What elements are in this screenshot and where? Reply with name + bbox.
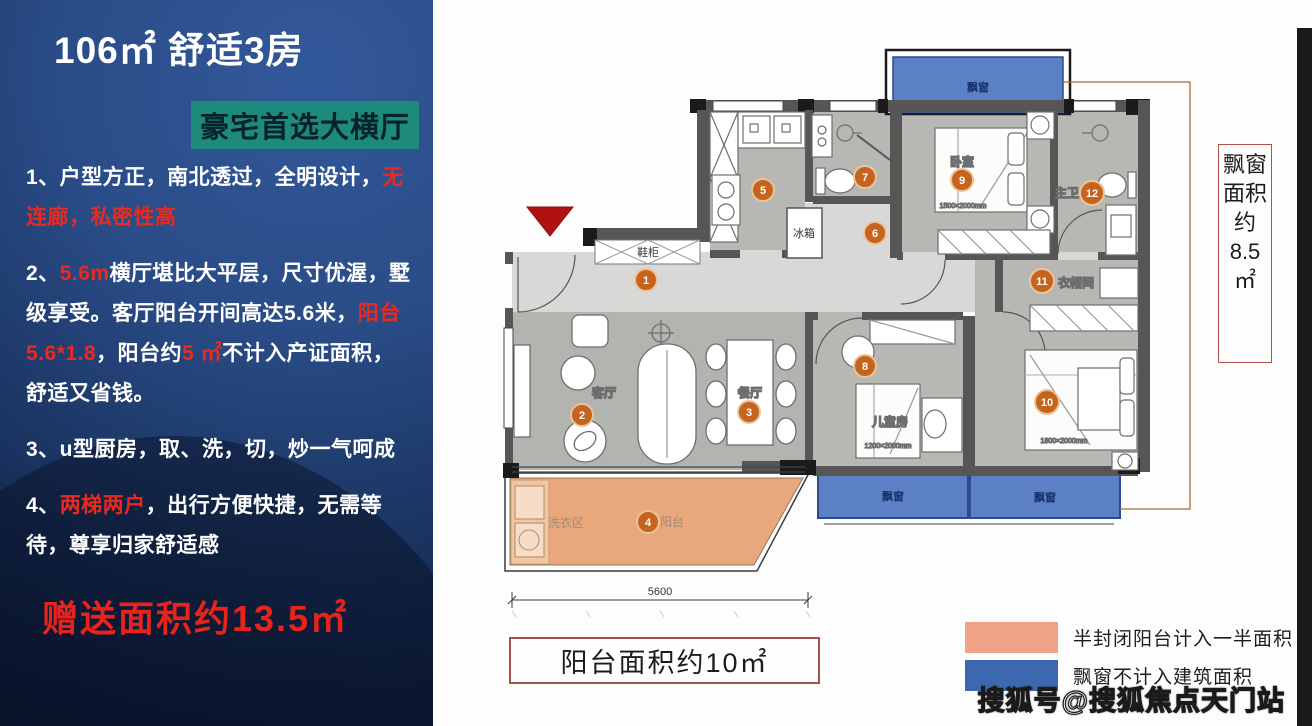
legend-item-balcony: 半封闭阳台计入一半面积 — [965, 622, 1293, 653]
right-edge-strip — [1297, 28, 1312, 726]
marker-8: 8 — [854, 355, 876, 377]
svg-text:7: 7 — [862, 172, 868, 184]
svg-text:9: 9 — [959, 175, 965, 187]
legend-label: 半封闭阳台计入一半面积 — [1073, 624, 1293, 651]
page: 106㎡ 舒适3房 豪宅首选大横厅 1、户型方正，南北透过，全明设计，无连廊，私… — [0, 0, 1312, 726]
marker-3: 3 — [738, 401, 760, 423]
dimension-line: 5600 — [508, 586, 812, 617]
svg-text:4: 4 — [645, 517, 652, 529]
svg-text:8: 8 — [862, 361, 868, 373]
marker-9: 9 — [951, 169, 973, 191]
marker-2: 2 — [571, 404, 593, 426]
bed-dimension: 1200×2000mm — [865, 443, 912, 450]
dining-label: 餐厅 — [738, 385, 762, 400]
svg-text:12: 12 — [1086, 188, 1098, 200]
marker-6: 6 — [864, 222, 886, 244]
marker-4: 4 — [637, 511, 659, 533]
svg-text:11: 11 — [1036, 276, 1048, 288]
svg-text:2: 2 — [579, 410, 585, 422]
floorplan-drawing: 洗衣区 阳台 飘窗 飘窗 飘窗 — [0, 0, 1312, 726]
bay-window-label: 飘窗 — [967, 80, 989, 94]
bay-window-label: 飘窗 — [1034, 490, 1056, 504]
laundry-label: 洗衣区 — [548, 515, 584, 530]
shoe-cabinet-label: 鞋柜 — [637, 245, 659, 259]
master-bath-label: 主卫 — [1055, 185, 1079, 200]
dimension-value: 5600 — [648, 586, 672, 598]
svg-text:10: 10 — [1041, 397, 1053, 409]
dining-room: 餐厅 — [706, 340, 796, 445]
watermark: 搜狐号@搜狐焦点天门站 — [978, 679, 1285, 718]
kids-room-label: 儿童房 — [871, 414, 908, 429]
marker-12: 12 — [1080, 181, 1104, 205]
bed-dimension: 1800×2000mm — [1041, 438, 1088, 445]
svg-text:6: 6 — [872, 228, 878, 240]
bay-windows-bottom: 飘窗 飘窗 — [818, 474, 1120, 524]
balcony-label: 阳台 — [660, 514, 684, 529]
living-label: 客厅 — [591, 385, 616, 400]
svg-text:5: 5 — [760, 185, 766, 197]
fridge-label: 冰箱 — [793, 226, 815, 240]
bay-window-area-note: 飘窗面积约 8.5 ㎡ — [1218, 144, 1272, 363]
marker-1: 1 — [635, 269, 657, 291]
svg-text:3: 3 — [746, 407, 752, 419]
entry-arrow-icon — [527, 207, 573, 236]
marker-5: 5 — [752, 179, 774, 201]
bay-window-label: 飘窗 — [882, 489, 904, 503]
marker-10: 10 — [1035, 390, 1059, 414]
closet-label: 衣帽间 — [1058, 275, 1094, 290]
marker-7: 7 — [854, 166, 876, 188]
bedroom-label: 卧室 — [950, 154, 974, 169]
legend-swatch-balcony — [965, 622, 1058, 653]
balcony-area-note: 阳台面积约10㎡ — [509, 637, 820, 684]
svg-text:1: 1 — [643, 275, 649, 287]
marker-11: 11 — [1030, 269, 1054, 293]
bed-dimension: 1500×2000mm — [940, 203, 987, 210]
